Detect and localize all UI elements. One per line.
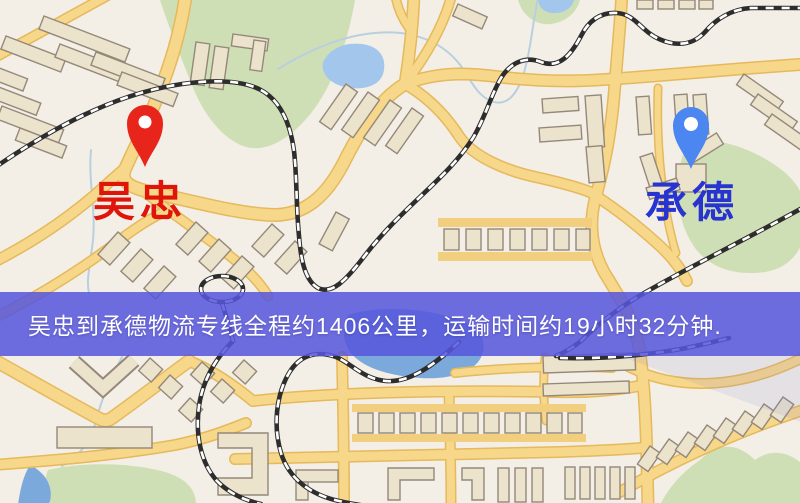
map-canvas[interactable]: 吴忠 承德 bbox=[0, 0, 800, 503]
destination-pin-hole bbox=[684, 117, 698, 131]
origin-label: 吴忠 bbox=[93, 178, 187, 225]
destination-label: 承德 bbox=[645, 179, 739, 226]
map-screenshot: 吴忠 承德 吴忠到承德物流专线全程约1406公里，运输时间约19小时32分钟. bbox=[0, 0, 800, 503]
origin-pin-hole bbox=[139, 116, 152, 129]
route-info-banner: 吴忠到承德物流专线全程约1406公里，运输时间约19小时32分钟. bbox=[0, 292, 800, 356]
route-info-text: 吴忠到承德物流专线全程约1406公里，运输时间约19小时32分钟. bbox=[28, 307, 722, 341]
